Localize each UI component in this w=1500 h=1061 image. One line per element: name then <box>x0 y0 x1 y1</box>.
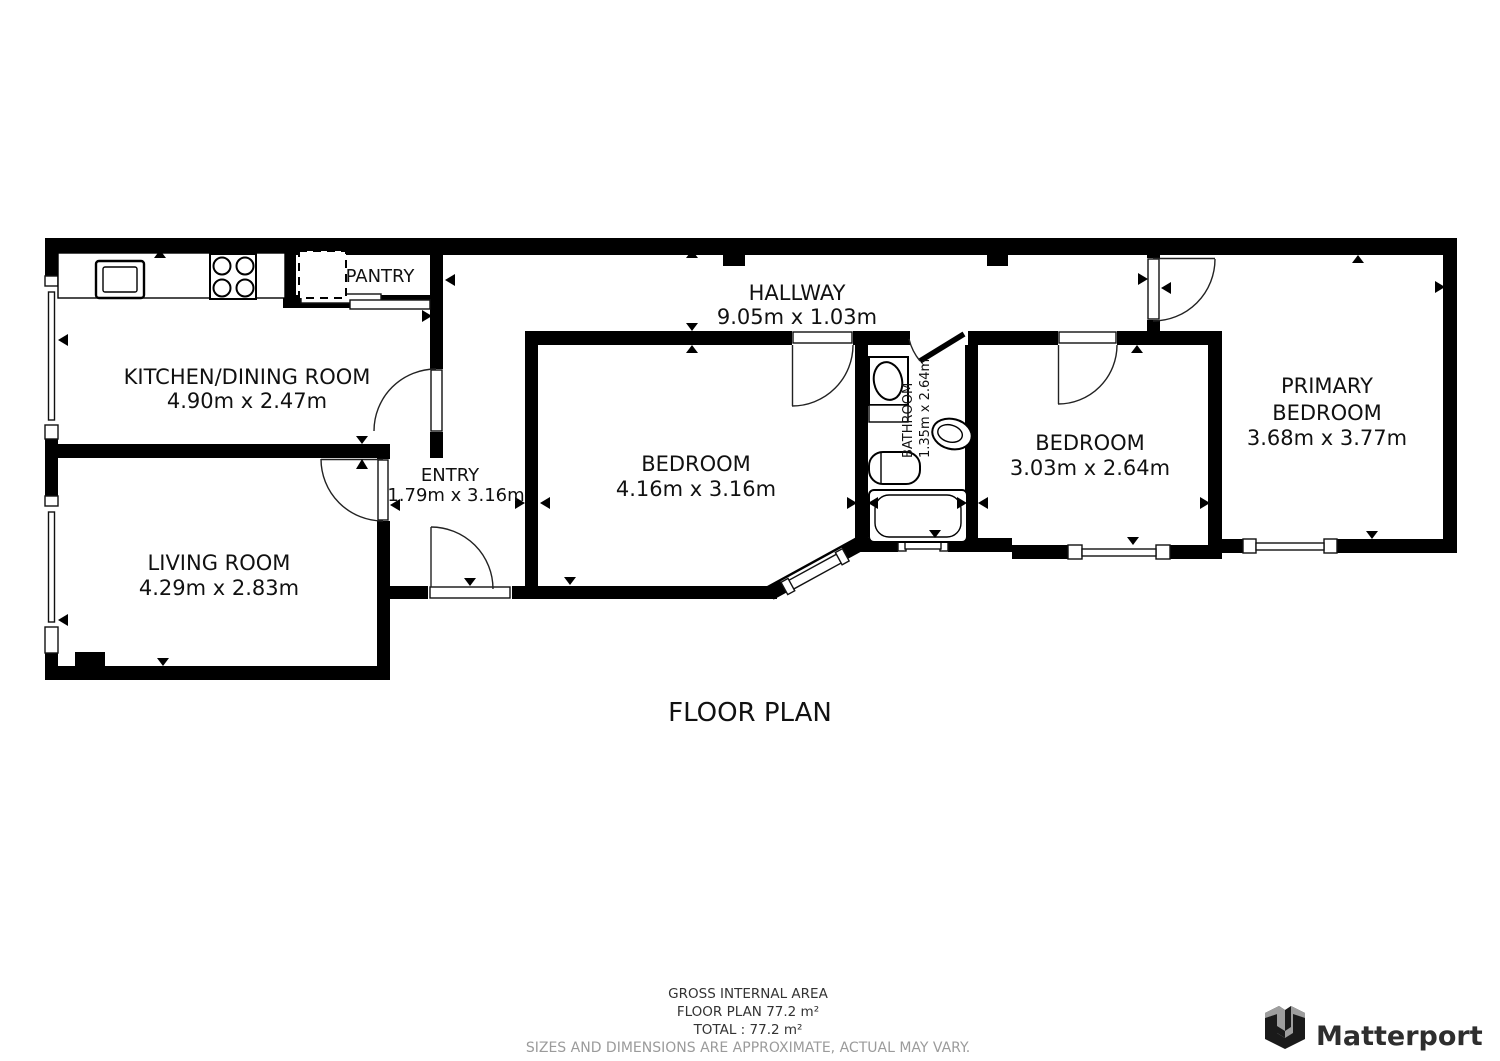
disclaimer-text: SIZES AND DIMENSIONS ARE APPROXIMATE, AC… <box>526 1040 970 1056</box>
bedroom1-label: BEDROOM <box>641 452 751 476</box>
page-title: FLOOR PLAN <box>668 698 832 728</box>
bedroom1-dims: 4.16m x 3.16m <box>616 477 776 501</box>
door-living-room <box>321 459 390 521</box>
pantry-cabinet-icon <box>299 251 346 298</box>
bedroom2-label: BEDROOM <box>1035 431 1145 455</box>
door-bedroom1 <box>792 331 853 406</box>
window-kitchen-left <box>45 276 58 439</box>
living-room-label: LIVING ROOM <box>148 551 291 575</box>
bathroom-dims: 1.35m x 2.64m <box>918 359 933 458</box>
stove-icon <box>210 254 256 299</box>
kitchen-dims: 4.90m x 2.47m <box>167 389 327 413</box>
matterport-logo-text: Matterport <box>1316 1021 1483 1052</box>
floor-plan-area: FLOOR PLAN 77.2 m² <box>677 1004 819 1020</box>
bedroom2-dims: 3.03m x 2.64m <box>1010 456 1170 480</box>
door-bedroom2 <box>1058 331 1117 404</box>
window-bedroom2 <box>1068 545 1170 559</box>
kitchen-sink-icon <box>96 261 144 298</box>
brand-logo: Matterport <box>1265 1006 1483 1052</box>
matterport-logo-icon <box>1265 1006 1305 1049</box>
pantry-label: PANTRY <box>346 266 416 287</box>
primary-bedroom-dims: 3.68m x 3.77m <box>1247 426 1407 450</box>
gross-internal-area: GROSS INTERNAL AREA <box>668 986 828 1002</box>
window-bay-diagonal <box>781 548 850 596</box>
door-front-entry <box>428 527 512 599</box>
door-kitchen <box>374 369 443 432</box>
living-room-dims: 4.29m x 2.83m <box>139 576 299 600</box>
total-area: TOTAL : 77.2 m² <box>693 1022 803 1038</box>
door-primary-bedroom <box>1147 258 1215 321</box>
window-living-left <box>45 496 58 653</box>
entry-dims: 1.79m x 3.16m <box>387 485 524 506</box>
hallway-dims: 9.05m x 1.03m <box>717 305 877 329</box>
primary-bedroom-label-1: PRIMARY <box>1281 374 1373 398</box>
entry-label: ENTRY <box>421 465 480 486</box>
bathroom-label: BATHROOM <box>901 383 916 458</box>
door-bathroom <box>909 331 968 361</box>
bathtub-icon <box>869 490 967 542</box>
hallway-label: HALLWAY <box>749 281 846 305</box>
primary-bedroom-label-2: BEDROOM <box>1272 401 1382 425</box>
kitchen-label: KITCHEN/DINING ROOM <box>124 365 371 389</box>
floor-plan-canvas: KITCHEN/DINING ROOM 4.90m x 2.47m PANTRY… <box>0 0 1500 1061</box>
window-primary-bedroom <box>1243 539 1337 553</box>
footer: GROSS INTERNAL AREA FLOOR PLAN 77.2 m² T… <box>526 986 970 1056</box>
